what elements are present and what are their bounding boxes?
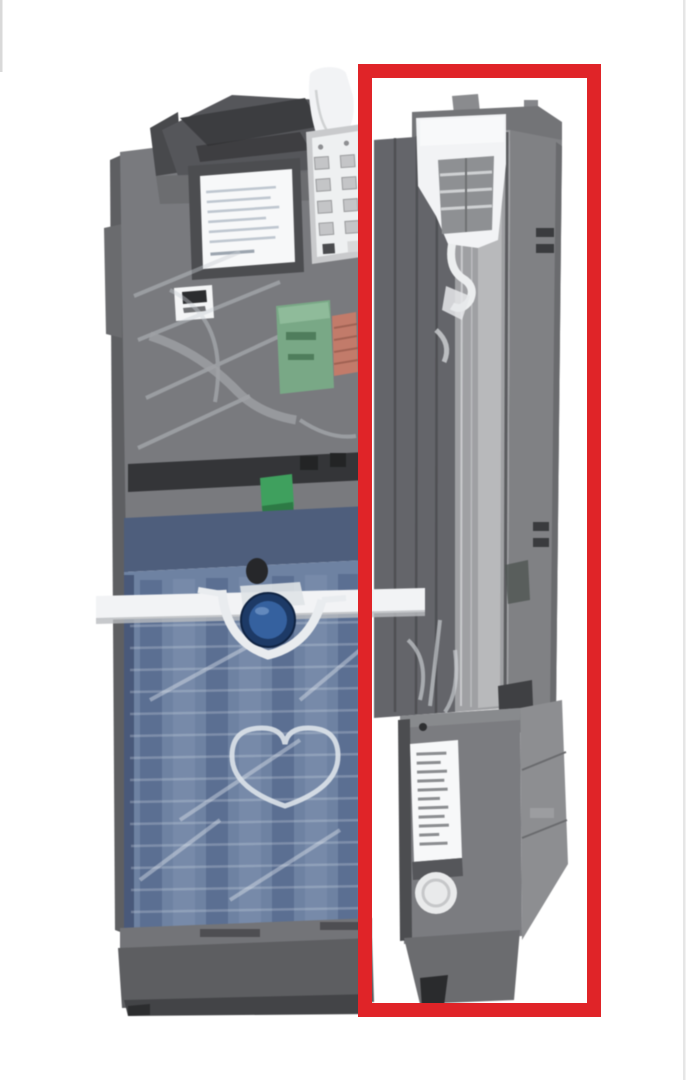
keypad-button bbox=[345, 221, 360, 234]
keypad-button bbox=[340, 155, 355, 168]
module-left-strip bbox=[398, 719, 412, 941]
instruction-label: instruction-label bbox=[188, 158, 304, 280]
vent-slot bbox=[536, 244, 554, 253]
vent-slot bbox=[533, 522, 549, 531]
keypad-face bbox=[312, 131, 363, 257]
keypad-button bbox=[317, 200, 332, 213]
round-button: round-button bbox=[415, 872, 457, 914]
coin-return-channel: coin-return-channel bbox=[374, 94, 562, 736]
module-emboss bbox=[530, 808, 554, 818]
lens-inner bbox=[249, 601, 287, 639]
coin-tube bbox=[206, 578, 228, 928]
edge-connector: edge-connector bbox=[332, 312, 358, 376]
base-foot bbox=[128, 1004, 150, 1016]
keypad-button-dark bbox=[322, 243, 335, 254]
module-screw bbox=[419, 723, 427, 731]
dark-latch bbox=[505, 560, 530, 604]
button-face bbox=[415, 872, 457, 914]
vent-slot bbox=[533, 538, 549, 547]
pcb-chip bbox=[286, 332, 316, 340]
coin-tube bbox=[338, 574, 358, 927]
connector-body bbox=[332, 312, 358, 376]
keypad-button bbox=[316, 178, 331, 191]
coin-changer-unit: coin-changer-unit coin-insert-hopper whi… bbox=[96, 67, 568, 1016]
photo-svg: coin-changer-unit coin-insert-hopper whi… bbox=[0, 0, 687, 1080]
keypad-button bbox=[343, 199, 358, 212]
lens-glint bbox=[255, 607, 269, 615]
keypad-button bbox=[342, 177, 357, 190]
coin-tube bbox=[173, 579, 195, 928]
band-socket bbox=[300, 456, 318, 470]
base-slot bbox=[320, 922, 360, 930]
base-pedestal: base-pedestal bbox=[118, 918, 374, 1016]
left-side-tab bbox=[104, 224, 122, 338]
groove bbox=[436, 135, 437, 713]
base-slot bbox=[200, 929, 260, 937]
right-edge-line bbox=[683, 0, 686, 1080]
internal-pcb: internal-pcb bbox=[276, 300, 334, 394]
latch-dot bbox=[246, 558, 268, 584]
keypad-button bbox=[314, 157, 329, 170]
spine-edge-line bbox=[505, 132, 507, 708]
band-socket bbox=[330, 453, 346, 467]
vent-slot bbox=[536, 228, 554, 237]
spec-label: spec-label bbox=[410, 740, 462, 862]
keypad-button bbox=[319, 222, 334, 235]
left-edge-artifact bbox=[0, 0, 3, 72]
cassette-left-strip bbox=[124, 575, 134, 935]
screenshot-canvas: coin-changer-unit coin-insert-hopper whi… bbox=[0, 0, 687, 1080]
bracket-wing bbox=[198, 590, 222, 594]
groove bbox=[416, 136, 417, 714]
sensor-lens: sensor-lens bbox=[241, 593, 295, 647]
pcb-chip bbox=[288, 354, 314, 360]
bracket-wing bbox=[322, 598, 346, 600]
actuator-top-band bbox=[420, 116, 504, 146]
